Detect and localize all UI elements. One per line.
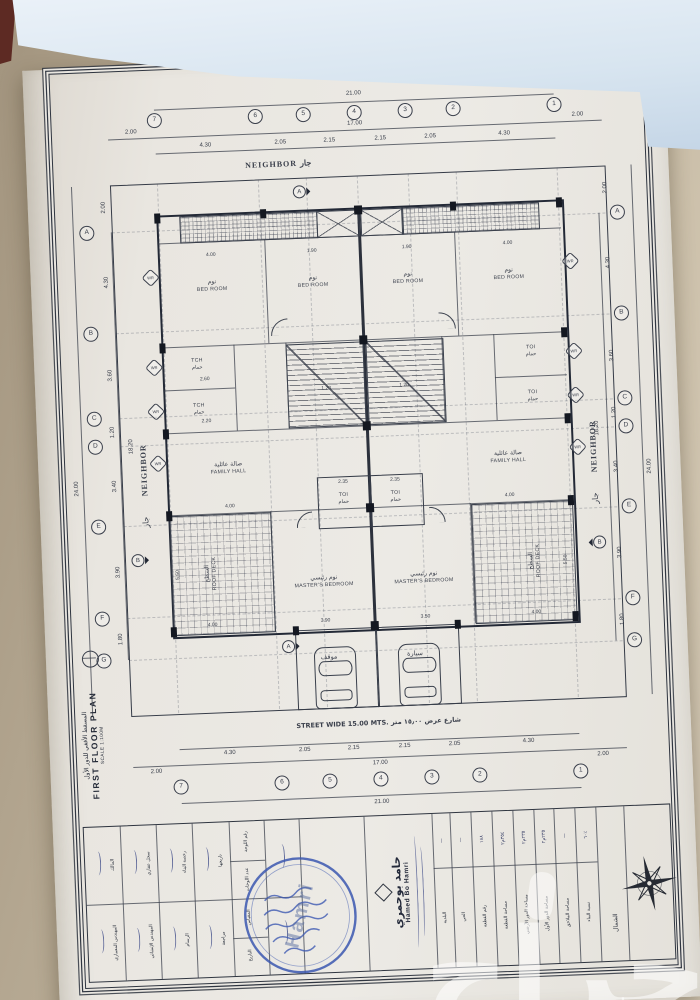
room-family-hall: صالة عائليةFAMILY HALL <box>490 449 526 464</box>
column <box>154 213 160 223</box>
section-arrow <box>306 187 314 195</box>
inner-dim: 4.00 <box>503 241 513 246</box>
titleblock-label: مراجعة <box>221 931 227 945</box>
column <box>166 511 172 521</box>
inner-dim: 4.00 <box>225 504 235 509</box>
titleblock-label: الرسام <box>186 933 192 947</box>
column <box>568 495 574 505</box>
inner-dim: 2.35 <box>390 478 400 483</box>
handwriting <box>170 926 177 950</box>
dim-overall-height: 24.00 <box>74 481 81 496</box>
inner-dim: 4.00 <box>505 493 515 498</box>
dim-inner-width: 17.00 <box>347 120 362 127</box>
column <box>371 621 379 630</box>
drawing-sheet: 21.00 7 6 5 4 3 2 1 2.00 17.00 2.00 4.30… <box>22 45 700 1000</box>
room-toilet: TOIحمام <box>390 490 401 503</box>
room-master-bedroom: نوم رئيسيMASTER'S BEDROOM <box>294 573 354 589</box>
table-value: — <box>459 837 464 842</box>
table-value: — <box>563 833 568 838</box>
dim-row-seg: 3.90 <box>115 566 121 578</box>
dim-overall-height: 24.00 <box>646 458 653 473</box>
titleblock-label: المالك <box>110 859 115 871</box>
column <box>450 202 456 211</box>
table-value: ٢٣٥م٢ <box>542 830 548 843</box>
column <box>366 503 374 512</box>
dim-col-seg: 2.15 <box>399 743 411 749</box>
car-label: سيارة <box>407 650 423 657</box>
column <box>359 335 367 344</box>
watermark-text: حراج <box>424 912 700 1000</box>
dim-side: 2.00 <box>125 129 137 135</box>
photo-of-floor-plan: { "plan": { "overall_w": "21.00", "inner… <box>0 0 700 1000</box>
column <box>363 421 371 430</box>
table-value: ١٨٨ <box>480 835 485 843</box>
dim-overall-width: 21.00 <box>346 90 361 97</box>
approval-stamp: Hamri <box>228 842 372 989</box>
column <box>564 413 570 423</box>
inner-dim: 2.60 <box>200 377 210 382</box>
dim-overall-width: 21.00 <box>374 799 389 806</box>
titleblock-label: المهندس الإنشائي <box>149 924 155 958</box>
dim-side: 2.00 <box>597 751 609 757</box>
parking-label: موقف <box>321 653 338 660</box>
roof-deck-hatch <box>169 512 276 636</box>
dim-col-seg: 2.05 <box>299 747 311 753</box>
column <box>171 627 177 637</box>
titleblock-label: المهندس المعماري <box>113 925 119 961</box>
room-toilet: TOIحمام <box>527 389 538 402</box>
roof-deck-hatch <box>471 500 578 624</box>
inner-dim: 2.35 <box>338 480 348 485</box>
titleblock-label: رخصة البناء <box>182 851 188 873</box>
dim-row-seg: 1.20 <box>110 427 116 439</box>
scale-value: 1:100M <box>99 726 105 745</box>
titleblock-label: سجل عقاري <box>146 851 152 875</box>
room-family-hall: صالة عائليةFAMILY HALL <box>210 460 246 475</box>
room-toilet: TCHحمام <box>193 402 205 415</box>
handwriting <box>134 928 141 952</box>
dim-col-seg: 4.30 <box>523 738 535 744</box>
dim-row-seg: 1.80 <box>118 633 124 645</box>
room-toilet: TOIحمام <box>525 344 536 357</box>
dim-col-seg: 2.05 <box>449 741 461 747</box>
room-master-bedroom: نوم رئيسيMASTER'S BEDROOM <box>394 569 454 585</box>
handwriting <box>167 848 174 872</box>
book-cover-edge <box>0 0 16 64</box>
inner-dim: 1.20 <box>399 383 409 388</box>
handwriting <box>95 851 102 875</box>
shaft <box>360 208 404 237</box>
handwriting <box>206 925 213 949</box>
titleblock-label: تاريخها <box>218 854 224 867</box>
inner-dim: 4.00 <box>531 610 541 615</box>
room-bedroom: نومBED ROOM <box>196 278 227 293</box>
inner-dim: 3.50 <box>421 614 431 619</box>
column <box>556 197 562 207</box>
room-toilet: TCHحمام <box>191 357 203 370</box>
sheetinfo-label: رقم اللوحة <box>243 831 249 852</box>
table-value: ٣٥٤م٢ <box>501 831 507 844</box>
dim-col-seg: 4.30 <box>199 142 211 148</box>
table-value: — <box>440 838 445 843</box>
handwriting <box>131 850 138 874</box>
dim-inner-width: 17.00 <box>373 760 388 767</box>
inner-dim: 4.00 <box>206 253 216 258</box>
column <box>163 429 169 439</box>
dim-side: 2.00 <box>151 769 163 775</box>
inner-dim: 5.50 <box>564 554 569 564</box>
inner-dim: 2.20 <box>202 419 212 424</box>
column <box>572 611 578 621</box>
section-arrow <box>295 642 303 650</box>
room-toilet: TOIحمام <box>338 492 349 505</box>
room-bedroom: نومBED ROOM <box>392 270 423 285</box>
room-roof-deck: السطحROOF DECK <box>527 544 542 578</box>
inner-dim: 1.20 <box>321 386 331 391</box>
column <box>293 626 299 635</box>
room-bedroom: نومBED ROOM <box>297 274 328 289</box>
inner-dim: 1.90 <box>307 249 317 254</box>
dim-side: 2.00 <box>101 202 107 214</box>
dim-col-seg: 2.15 <box>323 137 335 143</box>
inner-dim: 3.90 <box>321 618 331 623</box>
dim-row-seg: 3.40 <box>112 480 118 492</box>
dim-col-seg: 4.30 <box>224 750 236 756</box>
dim-row-seg: 4.30 <box>104 277 110 289</box>
column <box>354 205 362 214</box>
dim-col-seg: 2.15 <box>374 135 386 141</box>
dim-col-seg: 2.05 <box>424 133 436 139</box>
dim-col-seg: 2.15 <box>348 745 360 751</box>
dim-col-seg: 4.30 <box>498 130 510 136</box>
inner-dim: 4.00 <box>208 623 218 628</box>
handwriting <box>98 929 105 953</box>
table-value: ٦٠٪ <box>584 831 589 839</box>
handwriting <box>203 847 210 871</box>
company-panel: حامد بوحمري Hamed Bo Hamri <box>374 816 427 968</box>
inner-dim: 1.90 <box>402 245 412 250</box>
section-arrow <box>584 538 592 546</box>
section-arrow <box>145 556 153 564</box>
column <box>455 620 461 629</box>
room-roof-deck: السطحROOF DECK <box>203 557 218 591</box>
scale-label: SCALE <box>99 746 105 764</box>
dim-row-seg: 3.60 <box>107 370 113 382</box>
inner-dim: 5.50 <box>176 570 181 580</box>
column <box>159 343 165 353</box>
column <box>561 327 567 337</box>
column <box>260 209 266 218</box>
dim-side: 2.00 <box>572 111 584 117</box>
room-bedroom: نومBED ROOM <box>493 266 524 281</box>
table-value: ٢٣٥م٢ <box>522 831 528 844</box>
dim-col-seg: 2.05 <box>274 139 286 145</box>
